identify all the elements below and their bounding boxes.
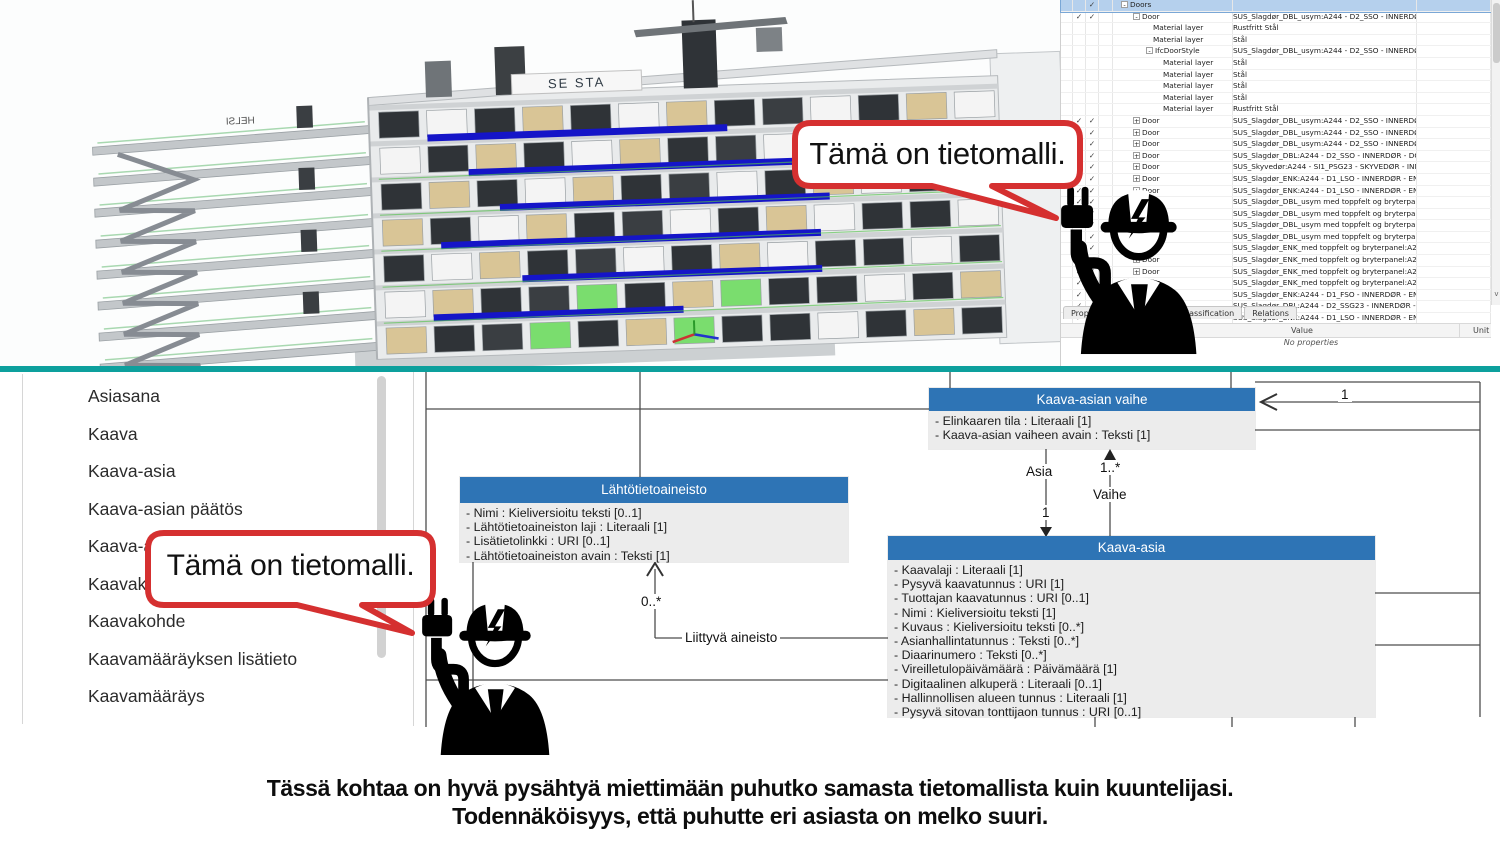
caption-line-2: Todennäköisyys, että puhutte eri asiasta… — [0, 802, 1500, 830]
speech-bubble-bottom-text: Tämä on tietomalli. — [148, 549, 433, 583]
speech-bubble-top-text: Tämä on tietomalli. — [795, 136, 1080, 172]
bim-screenshot-section: SE STAHELSI ✓-Doors✓✓-DoorSUS_Slagdør_DB… — [0, 0, 1500, 366]
caption-line-1: Tässä kohtaa on hyvä pysähtyä miettimään… — [0, 774, 1500, 802]
speech-bubble-top — [0, 0, 1500, 366]
slide-caption: Tässä kohtaa on hyvä pysähtyä miettimään… — [0, 774, 1500, 830]
data-model-section: AsiasanaKaavaKaava-asiaKaava-asian päätö… — [0, 372, 1500, 844]
